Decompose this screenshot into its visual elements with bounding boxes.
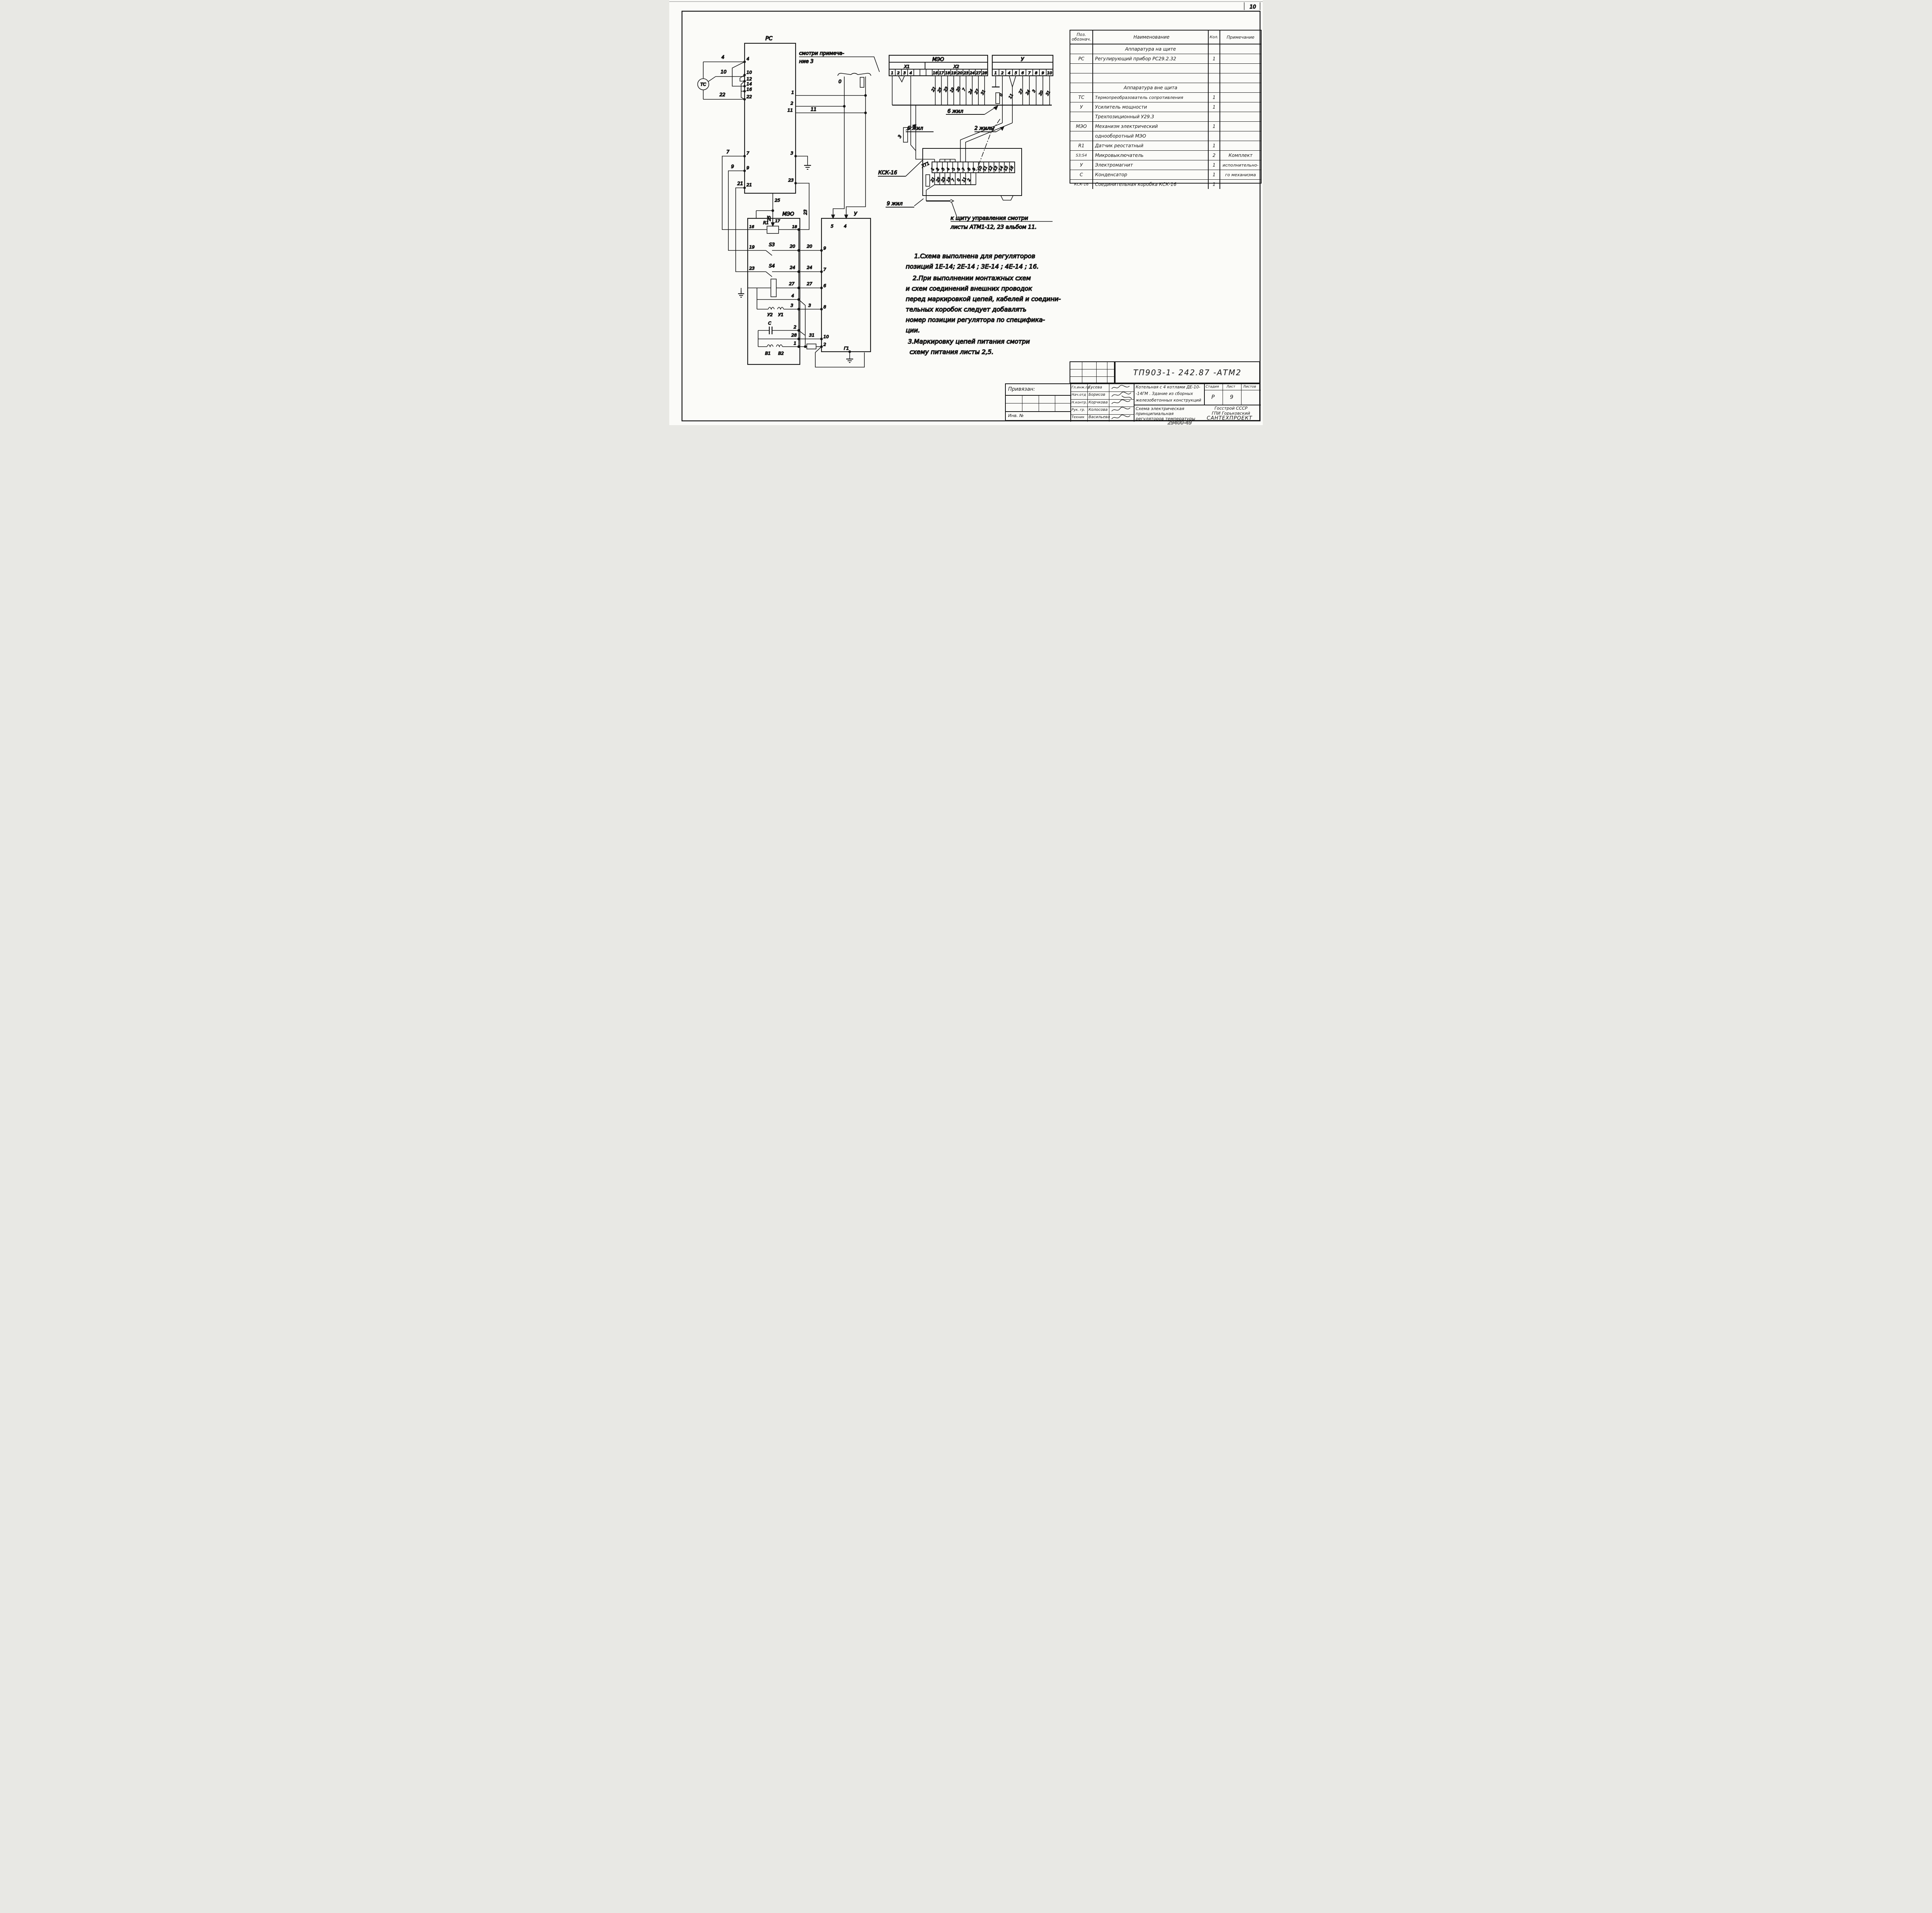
meo-t16: 16 bbox=[749, 225, 754, 229]
table-row: СКонденсатор1го механизма bbox=[1070, 170, 1261, 180]
u-wire-20: 20 bbox=[1038, 90, 1044, 97]
sheets-header: Листов bbox=[1243, 385, 1256, 389]
u-conn-t9: 9 bbox=[1042, 71, 1044, 75]
u-conn-t10: 10 bbox=[1047, 71, 1052, 75]
wire-22-label: 22 bbox=[719, 92, 725, 97]
meo-w28: 28 bbox=[791, 333, 797, 338]
ksk-strip-label: ХТ1 bbox=[920, 161, 930, 169]
u-conn-t8: 8 bbox=[1035, 71, 1037, 75]
svg-text:и схем соединений внешних: и схем соединений внешних проводок bbox=[906, 285, 1032, 292]
meo-conn-t1: 1 bbox=[891, 71, 893, 75]
meo-w19: 19 bbox=[749, 245, 755, 250]
u-wire-31: 31 bbox=[1045, 90, 1051, 97]
u-conn-title: У bbox=[1021, 57, 1024, 63]
u-g1: Г1 bbox=[844, 346, 849, 351]
u-p6: 6 bbox=[823, 283, 826, 288]
note-ref-line2: ние 3 bbox=[799, 59, 813, 65]
ksk-t1: 1 bbox=[930, 167, 935, 171]
svg-text:2.При выполнении монтажных: 2.При выполнении монтажных схем bbox=[913, 274, 1031, 282]
wire-9-label: 9 bbox=[731, 164, 734, 169]
privyazan-label: Привязан: bbox=[1008, 386, 1035, 392]
meo-w31: 31 bbox=[809, 333, 815, 338]
ksk-t8: 8 bbox=[967, 167, 972, 171]
drawing-sheet: { "frame": { "sheet_no": "10", "doc_stam… bbox=[669, 0, 1263, 425]
meo-w27a: 27 bbox=[789, 281, 794, 286]
meo-w20a: 20 bbox=[790, 244, 795, 249]
table-row: УУсилитель мощности1 bbox=[1070, 102, 1261, 112]
inv-label: Инв. № bbox=[1008, 413, 1024, 418]
meo-w27b: 27 bbox=[807, 281, 812, 286]
rc-pin11: 11 bbox=[787, 108, 793, 113]
name-2: Корчкова bbox=[1088, 400, 1108, 405]
meo-conn-t24: 24 bbox=[970, 71, 975, 75]
rc-pin1: 1 bbox=[791, 90, 794, 95]
signature-icon bbox=[1112, 392, 1132, 399]
signature-icon bbox=[1112, 400, 1130, 404]
ksk-t3: 3 bbox=[941, 167, 946, 171]
meo-conn-x2: X2 bbox=[953, 64, 959, 69]
object-line2: -14ГМ . Здание из сборных bbox=[1136, 391, 1193, 396]
cable-9: 9 жил bbox=[887, 201, 903, 207]
meo-w3b: 3 bbox=[808, 303, 811, 308]
ksk-box bbox=[923, 119, 1022, 200]
ksk-t5: 5 bbox=[951, 167, 956, 171]
rc-pin23: 23 bbox=[788, 178, 794, 183]
rc-pin3: 3 bbox=[791, 151, 793, 156]
meo-conn-t20: 20 bbox=[957, 71, 963, 75]
x2-wire-20: 20 bbox=[956, 86, 962, 93]
meo-block bbox=[738, 218, 864, 367]
role-1: Нач.отд bbox=[1071, 393, 1086, 397]
name-4: Васильева bbox=[1088, 415, 1110, 419]
rc-pin22: 22 bbox=[747, 94, 752, 99]
u-conn-t6: 6 bbox=[1021, 71, 1024, 75]
ksk-w21: 21 bbox=[930, 177, 936, 183]
org-line3: САНТЕХПРОЕКТ bbox=[1207, 415, 1252, 421]
table-row: Трехпозиционный У29.3 bbox=[1070, 112, 1261, 122]
meo-w24a: 24 bbox=[790, 265, 795, 270]
svg-text:перед маркировкой цепей, каб: перед маркировкой цепей, кабелей и соеди… bbox=[906, 295, 1061, 303]
table-row: УЭлектромагнит1исполнительно- bbox=[1070, 160, 1261, 170]
table-row: Аппаратура на щите bbox=[1070, 44, 1261, 54]
col-note-header: Примечание bbox=[1227, 35, 1255, 40]
object-line3: железобетонных конструкций bbox=[1136, 398, 1201, 403]
to-panel-line1: к щиту управления смотри bbox=[951, 215, 1028, 221]
rc-pin9: 9 bbox=[747, 165, 749, 170]
table-row: МЭОМеханизм электрический1 bbox=[1070, 122, 1261, 131]
meo-block-label: МЭО bbox=[782, 211, 794, 217]
signature-icon bbox=[1112, 407, 1130, 411]
org-line1: Госстрой СССР bbox=[1214, 406, 1247, 411]
rc-pin10: 10 bbox=[747, 70, 752, 75]
table-row: S3;S4Микровыключатель2Комплект bbox=[1070, 151, 1261, 160]
name-1: Борисов bbox=[1088, 393, 1105, 397]
meo-t18: 18 bbox=[792, 225, 797, 229]
meo-w23: 23 bbox=[749, 266, 755, 271]
tc-label: ТС bbox=[701, 82, 706, 87]
wire-11-label: 11 bbox=[811, 107, 816, 112]
meo-conn-x1: X1 bbox=[904, 64, 910, 69]
meo-w20b: 20 bbox=[807, 244, 812, 249]
signature-scribbles bbox=[1110, 384, 1133, 422]
table-row: Аппаратура вне щита bbox=[1070, 83, 1261, 93]
note-ref-line1: смотри примеча- bbox=[799, 51, 844, 56]
role-3: Рук. гр. bbox=[1071, 408, 1085, 412]
u-wire-27: 27 bbox=[1018, 88, 1024, 95]
meo-conn-x1-wiring bbox=[892, 76, 916, 151]
cable-6-right: 6 жил bbox=[947, 109, 963, 114]
object-line1: Котельная с 4 котлами ДЕ-10- bbox=[1136, 385, 1200, 390]
meo-conn-t4: 4 bbox=[910, 71, 912, 75]
ksk-t7: 7 bbox=[961, 167, 966, 172]
table-row: ТСТермопреобразователь сопротивления1 bbox=[1070, 93, 1261, 102]
col-qty-header: Кол. bbox=[1210, 35, 1219, 39]
ksk-t4: 4 bbox=[946, 167, 951, 171]
ksk-t2: 2 bbox=[935, 167, 940, 171]
ksk-t13: 13 bbox=[993, 165, 999, 172]
ksk-t6: 6 bbox=[956, 167, 961, 171]
ksk-t9: 9 bbox=[972, 167, 977, 171]
svg-text:1.Схема выполнена для регул: 1.Схема выполнена для регуляторов bbox=[914, 252, 1035, 260]
wire-7-label: 7 bbox=[726, 149, 730, 155]
u-p10: 10 bbox=[823, 334, 829, 339]
coil-v1: В1 bbox=[765, 351, 771, 356]
table-row: однооборотный МЭО bbox=[1070, 131, 1261, 141]
title-block: Привязан: Инв. № Гл.инж.пр. Гусева Нач.о… bbox=[1005, 383, 1260, 421]
wire-0-label: 0 bbox=[838, 79, 842, 84]
rc-pin14: 14 bbox=[747, 82, 752, 87]
x2-wire-19: 19 bbox=[949, 87, 956, 94]
cap-label: С bbox=[768, 321, 771, 326]
meo-w2: 2 bbox=[794, 325, 796, 330]
meo-conn-t27: 27 bbox=[976, 71, 981, 75]
meo-w3a: 3 bbox=[791, 303, 793, 308]
svg-text:тельных коробок следует: тельных коробок следует добавлять bbox=[906, 306, 1026, 313]
stage-header: Стадия bbox=[1206, 385, 1219, 389]
wire-23-rot: 23 bbox=[803, 209, 808, 215]
meo-conn-t28: 28 bbox=[982, 71, 987, 75]
meo-conn-t16: 16 bbox=[933, 71, 938, 75]
u-p2: 2 bbox=[823, 342, 826, 347]
meo-conn-t2: 2 bbox=[897, 71, 900, 75]
rc-pin25: 25 bbox=[775, 198, 780, 203]
component-table: Поз. обознач. Наименование Кол. Примечан… bbox=[1070, 30, 1262, 184]
x2-wire-23: 23 bbox=[943, 86, 949, 93]
u-wire-11: 11 bbox=[1008, 93, 1014, 100]
rc-pin4: 4 bbox=[747, 56, 749, 61]
rc-pin21: 21 bbox=[747, 182, 752, 187]
u-p9: 9 bbox=[823, 246, 826, 251]
meo-conn-t18: 18 bbox=[945, 71, 950, 75]
name-0: Гусева bbox=[1088, 385, 1102, 390]
meo-w24b: 24 bbox=[807, 265, 812, 270]
u-conn-t1: 1 bbox=[995, 71, 997, 75]
ksk-w23: 23 bbox=[940, 177, 947, 183]
svg-text:номер позиции регулятора п: номер позиции регулятора по специфика- bbox=[906, 316, 1045, 323]
table-row bbox=[1070, 64, 1261, 73]
notes-text: 1.Схема выполнена для регуляторов позици… bbox=[906, 252, 1061, 356]
table-row: КСК-16Соединительная коробка КСК-161 bbox=[1070, 180, 1261, 189]
role-2: Н.контр. bbox=[1071, 401, 1087, 405]
name-3: Колосова bbox=[1088, 408, 1107, 412]
sheet-corner-number: 10 bbox=[1250, 4, 1256, 10]
rc-pin2: 2 bbox=[791, 101, 793, 106]
meo-t17: 17 bbox=[775, 219, 780, 223]
cable-6-left: 6 жил bbox=[907, 126, 923, 131]
r1-label: R1 bbox=[763, 220, 769, 225]
meo-w4: 4 bbox=[791, 293, 794, 298]
doc-number-cell: ТП903-1- 242.87 -АТМ2 bbox=[1115, 361, 1260, 383]
u-p4: 4 bbox=[844, 224, 847, 229]
doc-number: ТП903-1- 242.87 -АТМ2 bbox=[1133, 368, 1242, 377]
u-block-label: У bbox=[854, 211, 857, 217]
s3-label: S3 bbox=[769, 242, 775, 247]
rc-right-wires bbox=[796, 77, 867, 218]
wire-21-label: 21 bbox=[737, 181, 743, 186]
u-conn-t7: 7 bbox=[1028, 71, 1031, 75]
u-p7: 7 bbox=[823, 267, 826, 272]
u-conn-t2: 2 bbox=[1001, 71, 1003, 75]
svg-text:схему питания листы 2,5.: схему питания листы 2,5. bbox=[910, 348, 993, 356]
revision-grid bbox=[1070, 361, 1115, 383]
u-conn-t4: 4 bbox=[1008, 71, 1010, 75]
component-table-header: Поз. обознач. Наименование Кол. Примечан… bbox=[1070, 31, 1261, 44]
signature-icon bbox=[1112, 415, 1130, 419]
meo-conn-t17: 17 bbox=[939, 71, 944, 75]
x2-wire-25: 25 bbox=[937, 87, 943, 94]
wire-10-label: 10 bbox=[721, 69, 727, 75]
meo-conn-t19: 19 bbox=[951, 71, 956, 75]
s4-label: S4 bbox=[769, 263, 775, 269]
u-block bbox=[820, 218, 871, 363]
drawing-title-line1: Схема электрическая bbox=[1136, 406, 1184, 411]
u-conn-t5: 5 bbox=[1015, 71, 1017, 75]
x2-wire-31: 31 bbox=[980, 89, 986, 96]
table-row: R1Датчик реостатный1 bbox=[1070, 141, 1261, 151]
table-row: РСРегулирующий прибор РС29.2.321 bbox=[1070, 54, 1261, 64]
role-4: Техник bbox=[1071, 415, 1085, 419]
x2-wire-24: 24 bbox=[968, 89, 974, 95]
svg-text:3.Маркировку цепей питания: 3.Маркировку цепей питания смотри bbox=[908, 338, 1030, 345]
col-name-header: Наименование bbox=[1133, 34, 1169, 40]
u-wire-24: 24 bbox=[1025, 89, 1031, 96]
coil-v2: В2 bbox=[778, 351, 784, 356]
ksk-label: КСК-16 bbox=[878, 170, 897, 176]
signature-icon bbox=[1112, 385, 1129, 389]
sheet-value: 9 bbox=[1230, 394, 1233, 400]
svg-text:ции.: ции. bbox=[906, 327, 920, 334]
svg-text:позиций 1Е-14; 2Е-14 ; 3Е-14: позиций 1Е-14; 2Е-14 ; 3Е-14 ; 4Е-14 ; 1… bbox=[906, 263, 1039, 270]
rc-pin12: 12 bbox=[747, 77, 752, 82]
wire-4-label: 4 bbox=[721, 54, 724, 60]
ksk-t11: 11 bbox=[982, 165, 988, 172]
drawing-title-line3: регуляторов температуры bbox=[1136, 416, 1195, 421]
u-p5: 5 bbox=[831, 224, 833, 229]
meo-w1: 1 bbox=[794, 341, 796, 346]
meo-conn-t3: 3 bbox=[903, 71, 906, 75]
cable-2: 2 жилы bbox=[975, 126, 994, 131]
stage-value: Р bbox=[1211, 394, 1214, 400]
u-p8: 8 bbox=[823, 305, 826, 310]
drawing-title-line2: принципиальная bbox=[1136, 411, 1173, 416]
rc-pin7: 7 bbox=[747, 151, 749, 156]
rc-lower-wires bbox=[722, 155, 811, 272]
x2-wire-27: 27 bbox=[974, 88, 980, 95]
rc-label: РС bbox=[765, 36, 772, 42]
meo-conn-t23: 23 bbox=[964, 71, 969, 75]
u-conn-wiring bbox=[961, 76, 1050, 162]
to-panel-line2: листы АТМ1-12, 23 альбом 11. bbox=[950, 224, 1037, 230]
table-row bbox=[1070, 73, 1261, 83]
wire-3-x1-label: 3 bbox=[897, 134, 903, 139]
sheet-header: Лист bbox=[1226, 385, 1235, 389]
meo-conn-title: МЭО bbox=[932, 57, 944, 63]
coil-u2: У2 bbox=[767, 312, 773, 317]
coil-u1: У1 bbox=[778, 312, 784, 317]
x2-wire-21: 21 bbox=[931, 86, 937, 93]
rc-pin16: 16 bbox=[747, 87, 752, 92]
